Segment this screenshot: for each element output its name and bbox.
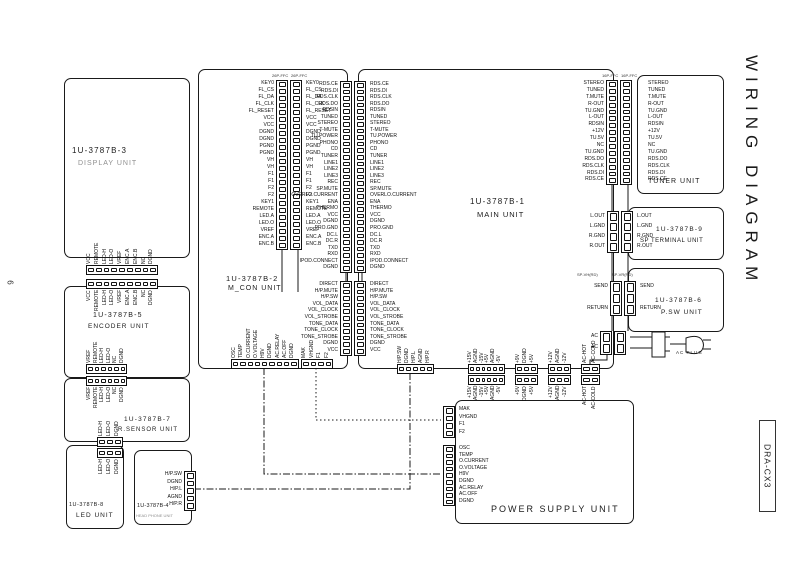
pin-label-row: +12VAGND-12V — [548, 386, 571, 412]
pin-label: RDS.CLK — [582, 163, 604, 170]
pin-label: L-OUT — [648, 114, 663, 121]
connector-pin — [357, 83, 364, 88]
connector-pin — [623, 116, 630, 121]
connector-pin — [357, 201, 364, 206]
pin-label: DGND — [259, 129, 274, 136]
pin-label: FL_CS — [258, 87, 274, 94]
connector-pin — [279, 96, 286, 101]
connector-strip — [397, 364, 434, 374]
pin-label: L-OUT — [589, 114, 604, 121]
connector-strip — [86, 376, 127, 386]
pin-label: VREF — [117, 238, 125, 264]
connector-pin — [279, 89, 286, 94]
pin-label: DGND — [370, 340, 385, 347]
connector-pin — [279, 124, 286, 129]
pin-label: NC — [112, 337, 119, 363]
connector-strip — [86, 265, 158, 275]
pin-label: R.GND — [589, 231, 605, 241]
connector-pin — [343, 214, 350, 219]
connector-pin — [104, 282, 110, 287]
unit-name-mcon: M_CON UNIT — [228, 285, 282, 292]
connector-pin — [531, 367, 536, 372]
pin-label: TUNED — [648, 87, 665, 94]
pin-label: DGND — [148, 238, 156, 264]
pin-label: FL_CLK — [256, 101, 274, 108]
pin-label: VCC — [370, 347, 381, 354]
connector-pin — [470, 367, 474, 372]
connector-pin — [357, 220, 364, 225]
connector-pin — [623, 165, 630, 170]
pin-label: RDS.CE — [585, 176, 604, 183]
connector-strip — [624, 281, 636, 316]
connector-pair-mcon-main-a: RDS.CERDS.DIRDS.CLKRDS.DORDSINTUNEDSTERE… — [298, 81, 417, 273]
pin-label: -12V — [562, 386, 569, 412]
connector-header: SP-VR(RD) — [612, 272, 633, 277]
connector-pin — [499, 367, 503, 372]
connector-strip — [515, 364, 538, 374]
connector-pin — [121, 367, 126, 372]
connector-main-power-c: +12VAGND-12V — [548, 337, 571, 374]
connector-pin — [357, 283, 364, 288]
pin-label: NC — [648, 142, 655, 149]
connector-ps-power-c: +12VAGND-12V — [548, 375, 571, 412]
pin-label: FL_RESET — [249, 108, 274, 115]
connector-strip — [184, 471, 196, 511]
connector-pin — [343, 142, 350, 147]
connector-pin — [623, 178, 630, 183]
connector-pin — [610, 233, 617, 241]
pin-label: RDSIN — [588, 121, 604, 128]
connector-pin — [446, 493, 453, 498]
pin-label-column: H/P.SWDGNDH/P.LAGNDH/P.R — [160, 471, 182, 509]
connector-pin — [303, 362, 309, 367]
pin-label-row: AC-HOTAC-COLD — [581, 337, 600, 363]
pin-label: ENC.B — [133, 238, 141, 264]
connector-pin — [279, 173, 286, 178]
connector-headphone-unit: H/P.SWDGNDH/P.LAGNDH/P.R — [160, 471, 198, 511]
pin-label: MAK — [459, 406, 470, 414]
connector-pin — [357, 129, 364, 134]
pin-label-column: L.OUTL.GNDR.GNDR.OUT — [583, 211, 605, 251]
connector-pin — [493, 378, 497, 383]
connector-main-power-a: +15VAGND-15V+5VAGND-5V — [468, 337, 505, 374]
pin-label: TEMP — [459, 452, 473, 459]
pin-label: ENC.A — [125, 290, 133, 316]
connector-pin — [624, 243, 631, 251]
pin-label: F2 — [268, 192, 274, 199]
pin-label: RETURN — [587, 303, 608, 314]
connector-pin — [343, 162, 350, 167]
pin-label: LED-O — [105, 410, 113, 436]
pin-label: AGND — [168, 494, 182, 502]
connector-pin — [343, 349, 350, 354]
connector-mcon-filament: MAKVHGNDF1F2 — [301, 332, 333, 369]
connector-pin — [357, 175, 364, 180]
unit-id-main: 1U-3787B-1 — [470, 197, 525, 206]
pin-label-column: SENDRETURN — [582, 281, 608, 314]
connector-pin — [617, 333, 624, 342]
pin-label: STEREO — [583, 80, 604, 87]
connector-pin — [627, 294, 634, 303]
connector-strip — [340, 281, 352, 356]
connector-pin — [627, 283, 634, 292]
connector-pin — [427, 367, 432, 372]
connector-strip — [515, 375, 538, 385]
pin-label: RDS.DI — [648, 170, 665, 177]
connector-pin — [476, 367, 480, 372]
connector-pin — [609, 82, 616, 87]
connector-pin — [343, 220, 350, 225]
connector-pin — [357, 316, 364, 321]
pin-label: DGND — [119, 337, 126, 363]
connector-pin — [609, 130, 616, 135]
connector-pin — [487, 378, 491, 383]
pin-label: FL_DA — [258, 94, 274, 101]
connector-pin — [279, 208, 286, 213]
pin-label: RDS.DI — [587, 170, 604, 177]
connector-pin — [609, 110, 616, 115]
pin-label: NC — [112, 387, 119, 413]
connector-rsensor-bottom: LED-HLED-ODGND — [97, 410, 123, 447]
pin-label: L.GND — [637, 221, 652, 231]
connector-strip — [86, 364, 127, 374]
connector-pin — [248, 362, 253, 367]
connector-ps-ac: AC-HOTAC-COLD — [581, 375, 600, 412]
pin-label: ENC.A — [259, 234, 274, 241]
connector-pin — [101, 367, 106, 372]
pin-label-column: KEY0FL_CSFL_DAFL_CLKFL_RESETVCCVCCDGNDDG… — [238, 80, 274, 248]
connector-pin — [623, 158, 630, 163]
connector-pin — [343, 227, 350, 232]
connector-pin — [127, 268, 133, 273]
connector-pin — [357, 103, 364, 108]
connector-pin — [291, 362, 296, 367]
connector-strip — [600, 331, 612, 355]
connector-pin — [343, 290, 350, 295]
connector-ps-filament: MAKVHGNDF1F2 — [443, 406, 477, 438]
pin-label: KEY0 — [261, 80, 274, 87]
connector-pin — [150, 282, 156, 287]
pin-label: T.MUTE — [648, 94, 666, 101]
pin-label: VCC — [263, 115, 274, 122]
pin-label: VREF — [261, 227, 274, 234]
connector-pin — [343, 116, 350, 121]
pin-label: TUNED — [587, 87, 604, 94]
connector-pin — [613, 283, 620, 292]
pin-label: F2 — [268, 185, 274, 192]
connector-pin — [311, 362, 317, 367]
connector-pin — [343, 266, 350, 271]
pin-label: R-OUT — [648, 101, 664, 108]
pin-label: DIRECT — [319, 281, 338, 288]
connector-encoder-top: VCCREMOTELED-HLED-OVREFENC.AENC.BNCDGND — [86, 279, 158, 316]
connector-pin — [135, 268, 141, 273]
connector-pin — [357, 240, 364, 245]
connector-pin — [357, 253, 364, 258]
connector-pin — [476, 378, 480, 383]
pin-label: DGND — [167, 479, 182, 487]
connector-pin — [88, 268, 94, 273]
pin-label: AC.RELAY — [275, 332, 282, 358]
pin-label-column: OSCTEMPO.CURRENTO.VOLTAGEH9VDGNDAC.RELAY… — [459, 445, 489, 504]
connector-pin — [187, 481, 194, 487]
connector-pin — [357, 303, 364, 308]
pin-label: KEY1 — [261, 199, 274, 206]
pin-label: DGND — [119, 387, 126, 413]
unit-name-led: LED UNIT — [76, 512, 114, 519]
pin-label-row: +12VAGND-12V — [548, 337, 571, 363]
connector-pin — [343, 109, 350, 114]
connector-pin — [343, 253, 350, 258]
connector-strip — [340, 81, 352, 273]
pin-label-row: +9VDGND+5V — [515, 386, 538, 412]
pin-label: AC.OFF — [459, 491, 477, 498]
page-number: 6 — [6, 280, 15, 284]
connector-pin — [557, 367, 562, 372]
connector-pin — [446, 408, 453, 414]
connector-pin — [150, 268, 156, 273]
connector-pin — [357, 188, 364, 193]
pin-label: AGND — [555, 386, 562, 412]
connector-pin — [279, 166, 286, 171]
pin-label: AGND — [555, 337, 562, 363]
connector-pin — [343, 260, 350, 265]
pin-label: VREF — [117, 290, 125, 316]
connector-header: SP-VH(RD) — [577, 272, 598, 277]
connector-pin — [357, 155, 364, 160]
pin-label: VH — [267, 164, 274, 171]
connector-rsensor-top: VREFREMOTELED-HLED-ONCDGND — [86, 376, 127, 413]
connector-strip — [443, 445, 455, 506]
connector-pin — [623, 144, 630, 149]
pin-label-row: +15VAGND-15V+5VAGND-5V — [468, 337, 505, 363]
pin-label-column: L.OUTL.GNDR.GNDR.OUT — [637, 211, 653, 251]
connector-pin — [277, 362, 282, 367]
connector-pin — [187, 503, 194, 509]
pin-label-row: LED-HLED-ODGND — [97, 410, 123, 436]
pin-label: ENC.B — [133, 290, 141, 316]
pin-label: L.OUT — [590, 211, 605, 221]
pin-label: F1 — [459, 421, 465, 429]
connector-pin — [357, 296, 364, 301]
connector-pin — [524, 378, 529, 383]
connector-pin — [343, 342, 350, 347]
pin-label: F2 — [324, 332, 332, 358]
pin-label: VHGND — [309, 332, 317, 358]
connector-pin — [343, 201, 350, 206]
connector-strip — [606, 80, 618, 185]
unit-name-display: DISPLAY UNIT — [78, 160, 137, 167]
connector-pin — [114, 379, 119, 384]
unit-box-display — [64, 78, 190, 258]
connector-pin — [399, 367, 404, 372]
connector-ps-control: OSCTEMPO.CURRENTO.VOLTAGEH9VDGNDAC.RELAY… — [443, 445, 489, 506]
unit-id-rsensor: 1U-3787B-7 — [124, 416, 171, 423]
pin-label: +12V — [648, 128, 660, 135]
pin-label: O.VOLTAGE — [459, 465, 487, 472]
connector-pin — [583, 367, 590, 372]
connector-pin — [564, 378, 569, 383]
connector-pin — [487, 367, 491, 372]
pin-label-row: VREFREMOTELED-HLED-ONCDGND — [86, 337, 127, 363]
pin-label: LED.O — [259, 220, 274, 227]
connector-strip — [614, 331, 626, 355]
connector-main-ac: AC-HOTAC-COLD — [581, 337, 600, 374]
unit-name-rsensor: R.SENSOR UNIT — [118, 427, 178, 433]
connector-pin — [564, 367, 569, 372]
connector-pin — [279, 194, 286, 199]
pin-label: AC-HOT — [581, 386, 590, 412]
pin-label: RETURN — [640, 303, 661, 314]
pin-label-column: STEREOTUNEDT.MUTER-OUTTU.GNDL-OUTRDSIN+1… — [648, 80, 670, 183]
connector-pin — [623, 96, 630, 101]
connector-pin — [624, 213, 631, 221]
pin-label: TU.5V — [648, 135, 662, 142]
connector-pin — [343, 181, 350, 186]
connector-mcon-control: OSCTEMPO.CURRENTO.VOLTAGEH9VDGNDAC.RELAY… — [231, 332, 299, 369]
ac-plug-label: AC PLUG — [676, 350, 703, 355]
connector-strip — [468, 364, 505, 374]
connector-pin — [446, 460, 453, 465]
connector-pin — [446, 467, 453, 472]
connector-pin — [343, 90, 350, 95]
pin-label: +12V — [548, 337, 555, 363]
pin-label: R-OUT — [588, 101, 604, 108]
pin-label: LED-H — [99, 337, 106, 363]
pin-label: +9V — [515, 386, 522, 412]
pin-label: H/P.R — [169, 501, 182, 509]
pin-label: T.MUTE — [586, 94, 604, 101]
connector-pin — [135, 282, 141, 287]
unit-name-main: MAIN UNIT — [477, 210, 524, 219]
connector-pin — [357, 168, 364, 173]
connector-pin — [95, 367, 100, 372]
pin-label: VCC — [86, 238, 94, 264]
connector-pin — [88, 282, 94, 287]
connector-pin — [343, 168, 350, 173]
connector-pin — [531, 378, 536, 383]
pin-label-column: MAKVHGNDF1F2 — [459, 406, 477, 436]
pin-label: L.GND — [590, 221, 605, 231]
connector-pin — [357, 309, 364, 314]
connector-pin — [592, 378, 599, 383]
connector-pin — [609, 172, 616, 177]
pin-label: VHGND — [459, 414, 477, 422]
pin-label-row: OSCTEMPO.CURRENTO.VOLTAGEH9VDGNDAC.RELAY… — [231, 332, 299, 358]
connector-pin — [624, 223, 631, 231]
connector-pin — [96, 282, 102, 287]
connector-pin — [187, 488, 194, 494]
pin-label: DGND — [113, 459, 121, 485]
connector-pin — [592, 367, 599, 372]
pin-label: H/P.L — [170, 486, 182, 494]
pin-label: RDS.CE — [648, 176, 667, 183]
pin-label: DGND — [522, 386, 529, 412]
connector-header: 26P-FFC — [291, 73, 307, 78]
connector-pin — [446, 487, 453, 492]
connector-pin — [143, 268, 149, 273]
pin-label: DGND — [459, 498, 474, 505]
pin-label: VOL_STROBE — [370, 314, 403, 321]
unit-name-psw: P.SW UNIT — [661, 309, 703, 316]
pin-label: DIRECT — [370, 281, 389, 288]
pin-label: AC.RELAY — [459, 485, 483, 492]
pin-label: DGND — [113, 410, 121, 436]
connector-pin — [187, 496, 194, 502]
connector-pin — [623, 82, 630, 87]
pin-label: DGND — [323, 264, 338, 271]
connector-pin — [318, 362, 324, 367]
pin-label: TONE_DATA — [309, 321, 338, 328]
connector-pin — [613, 294, 620, 303]
pin-label: TONE_DATA — [370, 321, 399, 328]
connector-pin — [96, 268, 102, 273]
unit-id-sp-terminal: 1U-3787B-9 — [656, 226, 703, 233]
connector-pin — [357, 194, 364, 199]
connector-strip — [97, 437, 123, 447]
pin-label: TU.GND — [585, 149, 604, 156]
pin-label: +9V — [515, 337, 522, 363]
connector-pin — [279, 236, 286, 241]
connector-pin — [624, 233, 631, 241]
connector-strip — [354, 281, 366, 356]
pin-label: DGND — [459, 478, 474, 485]
connector-pin — [343, 323, 350, 328]
connector-pin — [279, 222, 286, 227]
unit-id-psw: 1U-3787B-6 — [655, 297, 702, 304]
connector-pin — [343, 247, 350, 252]
pin-label: F1 — [268, 178, 274, 185]
connector-strip — [610, 281, 622, 316]
connector-pin — [279, 215, 286, 220]
connector-pin — [111, 268, 117, 273]
pin-label: MAK — [301, 332, 309, 358]
connector-pin — [482, 378, 486, 383]
pin-label: H/P.L — [411, 337, 418, 363]
connector-pin — [343, 122, 350, 127]
connector-ps-power-b: +9VDGND+5V — [515, 375, 538, 412]
connector-pin — [262, 362, 267, 367]
connector-pin — [524, 367, 529, 372]
connector-pin — [446, 473, 453, 478]
pin-label: H/P.R — [425, 337, 432, 363]
pin-label: AGND — [418, 337, 425, 363]
connector-pin — [609, 116, 616, 121]
model-badge: DRA-CX3 — [759, 420, 776, 512]
connector-pin — [343, 175, 350, 180]
connector-pin — [343, 240, 350, 245]
connector-pair-main-tuner: STEREOTUNEDT.MUTER-OUTTU.GNDL-OUTRDSIN+1… — [576, 80, 670, 185]
connector-pin — [343, 283, 350, 288]
connector-pin — [111, 282, 117, 287]
connector-pair-psw: SENDRETURN SENDRETURN — [582, 281, 661, 316]
pin-label: VOL_CLOCK — [370, 307, 400, 314]
connector-pin — [107, 440, 113, 445]
connector-pin — [603, 333, 610, 342]
pin-label: H/P.SW — [165, 471, 182, 479]
connector-pin — [357, 96, 364, 101]
pin-label: LED.A — [260, 213, 274, 220]
unit-name-headphone: HEAD PHONE UNIT — [136, 513, 173, 518]
pin-label: DGND — [370, 264, 385, 271]
pin-label: SEND — [594, 281, 608, 292]
pin-label-column: RDS.CERDS.DIRDS.CLKRDS.DORDSINTUNEDSTERE… — [370, 81, 417, 271]
pin-label: ENC.B — [259, 241, 274, 248]
connector-pin — [357, 247, 364, 252]
pin-label: R.OUT — [589, 241, 605, 251]
connector-pin — [609, 151, 616, 156]
pin-label-column: RDS.CERDS.DIRDS.CLKRDS.DORDSINTUNEDSTERE… — [298, 81, 338, 271]
